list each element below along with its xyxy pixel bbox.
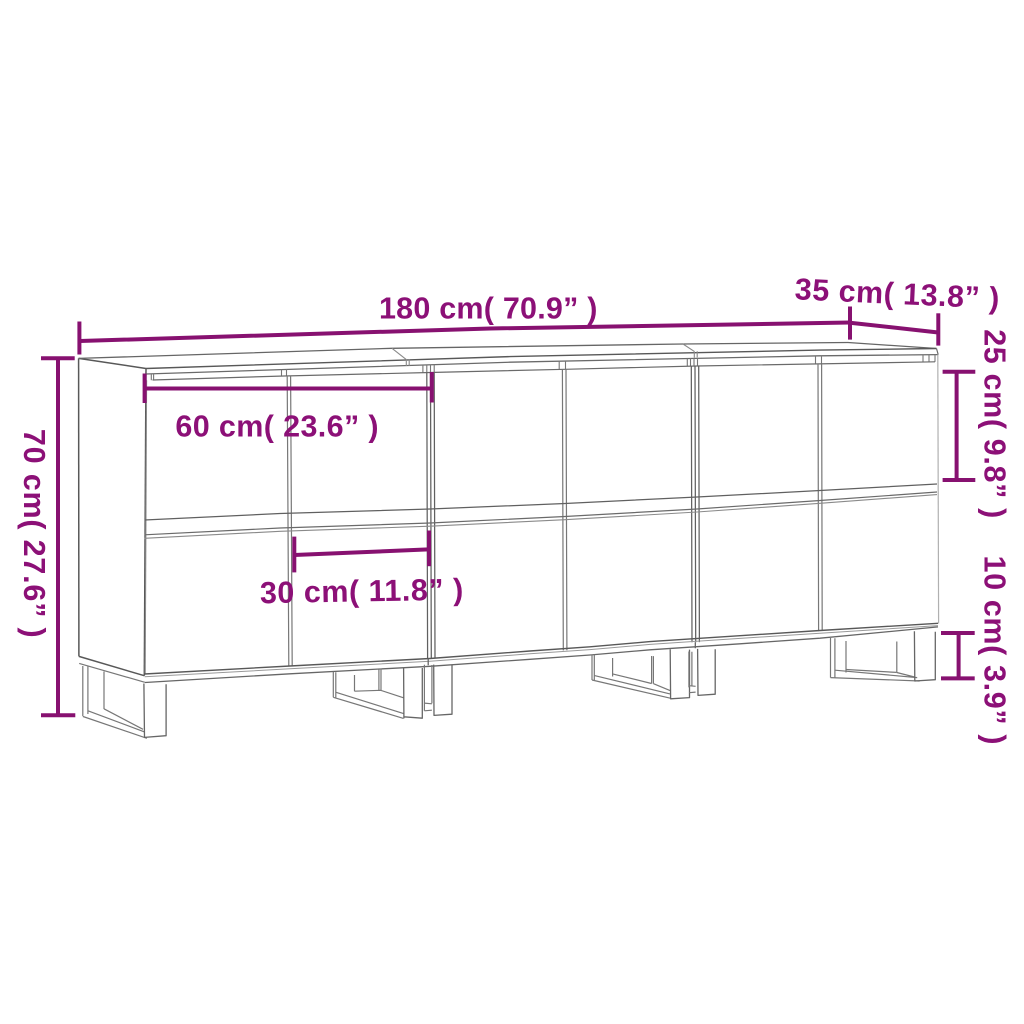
svg-text:10 cm( 3.9” ): 10 cm( 3.9” ) (978, 556, 1012, 745)
svg-text:30 cm( 11.8” ): 30 cm( 11.8” ) (260, 573, 464, 611)
svg-text:70 cm( 27.6” ): 70 cm( 27.6” ) (17, 429, 51, 638)
svg-text:60 cm( 23.6” ): 60 cm( 23.6” ) (175, 409, 378, 443)
svg-text:25 cm( 9.8” ): 25 cm( 9.8” ) (978, 329, 1012, 518)
svg-text:180 cm( 70.9” ): 180 cm( 70.9” ) (379, 291, 597, 325)
